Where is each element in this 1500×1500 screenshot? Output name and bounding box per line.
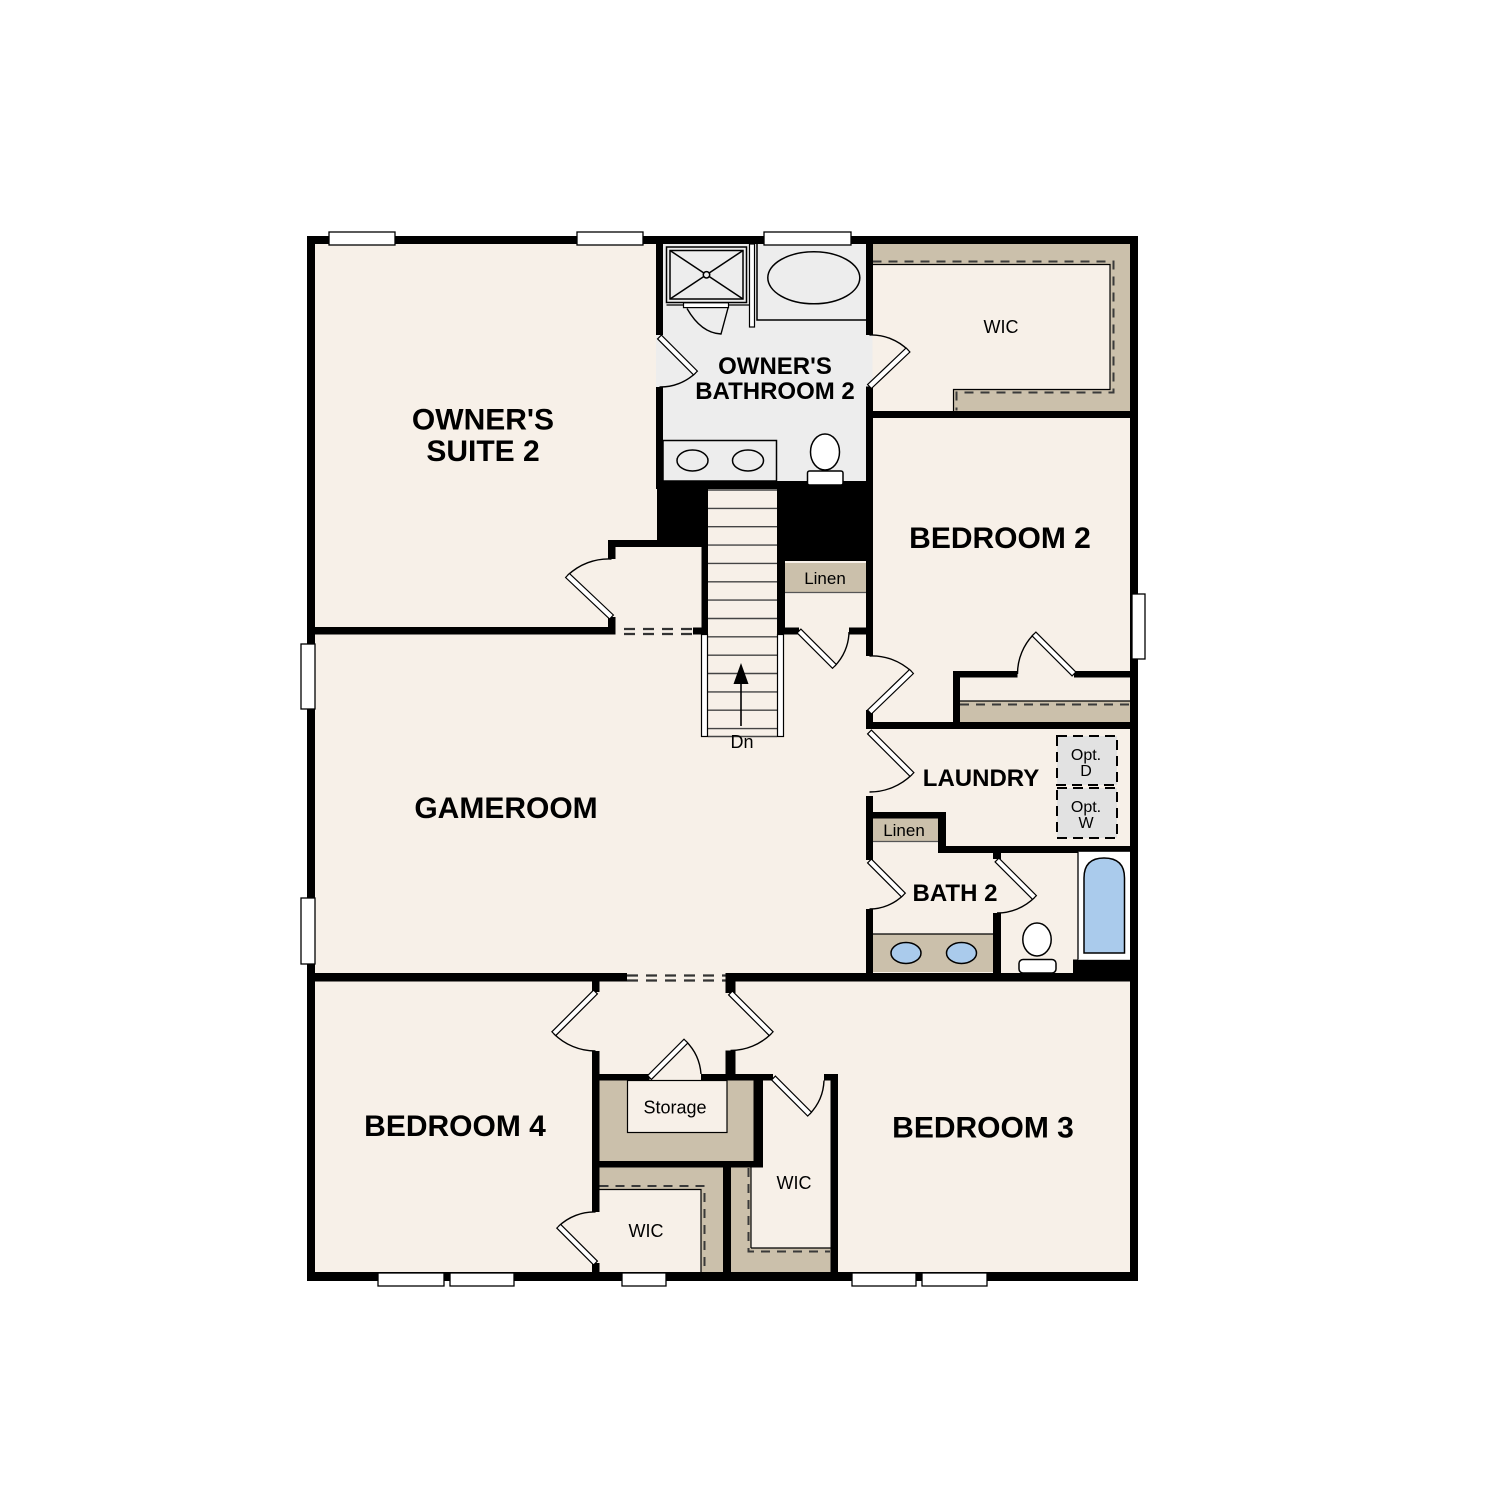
svg-text:Opt.: Opt. xyxy=(1071,747,1101,764)
svg-text:Linen: Linen xyxy=(804,569,846,588)
svg-text:BATHROOM 2: BATHROOM 2 xyxy=(695,378,855,405)
svg-text:Dn: Dn xyxy=(730,732,753,752)
svg-text:BEDROOM 4: BEDROOM 4 xyxy=(364,1110,546,1143)
svg-text:LAUNDRY: LAUNDRY xyxy=(923,765,1039,792)
svg-text:WIC: WIC xyxy=(984,317,1019,337)
svg-text:OWNER'S: OWNER'S xyxy=(412,404,554,437)
svg-text:WIC: WIC xyxy=(777,1173,812,1193)
svg-text:Opt.: Opt. xyxy=(1071,799,1101,816)
svg-text:BEDROOM 2: BEDROOM 2 xyxy=(909,522,1091,555)
svg-text:BATH 2: BATH 2 xyxy=(913,880,998,907)
svg-text:BEDROOM 3: BEDROOM 3 xyxy=(892,1112,1074,1145)
svg-text:WIC: WIC xyxy=(629,1221,664,1241)
svg-text:OWNER'S: OWNER'S xyxy=(718,353,832,380)
svg-text:W: W xyxy=(1078,815,1094,832)
svg-text:Linen: Linen xyxy=(883,821,925,840)
svg-text:GAMEROOM: GAMEROOM xyxy=(414,792,597,825)
svg-text:Storage: Storage xyxy=(643,1098,706,1118)
svg-text:D: D xyxy=(1080,763,1092,780)
svg-text:SUITE 2: SUITE 2 xyxy=(426,435,539,468)
